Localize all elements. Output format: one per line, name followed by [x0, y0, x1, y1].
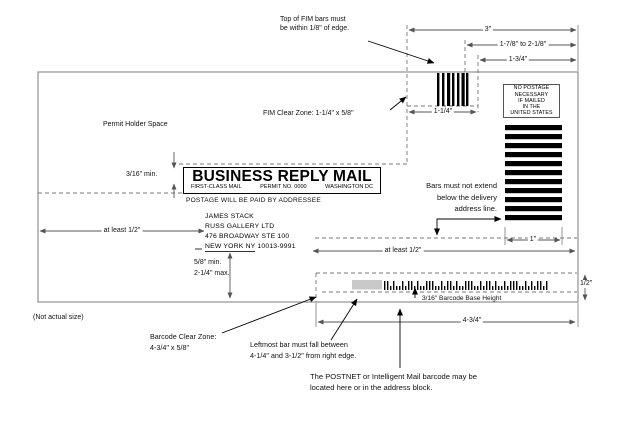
dim-at-least-half-mid: at least 1/2" [383, 247, 424, 255]
fim-top-note: Top of FIM bars must be within 1/8" of e… [280, 15, 349, 33]
bars-note: Bars must not extend below the delivery … [426, 180, 497, 215]
brm-legend-box: BUSINESS REPLY MAIL FIRST-CLASS MAIL PER… [183, 167, 381, 194]
permit-holder-space: Permit Holder Space [103, 120, 168, 129]
barcode-base-height-label: 3/16" Barcode Base Height [422, 294, 501, 303]
dim-434: 4-3/4" [461, 317, 483, 325]
address-block: JAMES STACK RUSS GALLERY LTD 476 BROADWA… [205, 212, 296, 252]
brm-envelope-diagram: Top of FIM bars must be within 1/8" of e… [0, 0, 623, 422]
address-line: JAMES STACK [205, 212, 296, 222]
brm-class: FIRST-CLASS MAIL [191, 184, 242, 191]
brm-title: BUSINESS REPLY MAIL [184, 169, 380, 184]
dim-214-max: 2-1/4" max. [194, 269, 230, 278]
address-line: RUSS GALLERY LTD [205, 222, 296, 232]
postnet-location-note: The POSTNET or Intelligent Mail barcode … [310, 371, 477, 393]
postage-paid-line: POSTAGE WILL BE PAID BY ADDRESSEE [186, 196, 321, 205]
not-actual-size: (Not actual size) [33, 313, 84, 322]
fim-clear-zone-label: FIM Clear Zone: 1-1/4" x 5/8" [263, 109, 354, 118]
dim-58-min: 5/8" min. [194, 258, 221, 267]
barcode-clear-zone-label: Barcode Clear Zone: 4-3/4" x 5/8" [150, 332, 216, 353]
brm-city: WASHINGTON DC [325, 184, 373, 191]
leftmost-bar-note: Leftmost bar must fall between 4-1/4" an… [250, 340, 356, 361]
brm-subtitle: FIRST-CLASS MAIL PERMIT NO. 0000 WASHING… [184, 184, 380, 191]
dim-316-min: 3/16" min. [124, 171, 159, 179]
dim-at-least-half-left: at least 1/2" [102, 227, 143, 235]
address-line: 476 BROADWAY STE 100 [205, 232, 296, 242]
dim-half-right: 1/2" [579, 280, 593, 288]
dim-114: 1-1/4" [432, 108, 454, 116]
dim-178-218: 1-7/8" to 2-1/8" [498, 41, 549, 49]
dim-3in: 3" [483, 26, 493, 34]
barcode-start-shade [352, 280, 382, 290]
brm-permit: PERMIT NO. 0000 [260, 184, 307, 191]
dim-134: 1-3/4" [507, 56, 529, 64]
dim-1in: 1" [528, 236, 538, 244]
no-postage-box: NO POSTAGE NECESSARY IF MAILED IN THE UN… [503, 84, 560, 118]
address-line-city: NEW YORK NY 10013-9991 [205, 242, 296, 252]
